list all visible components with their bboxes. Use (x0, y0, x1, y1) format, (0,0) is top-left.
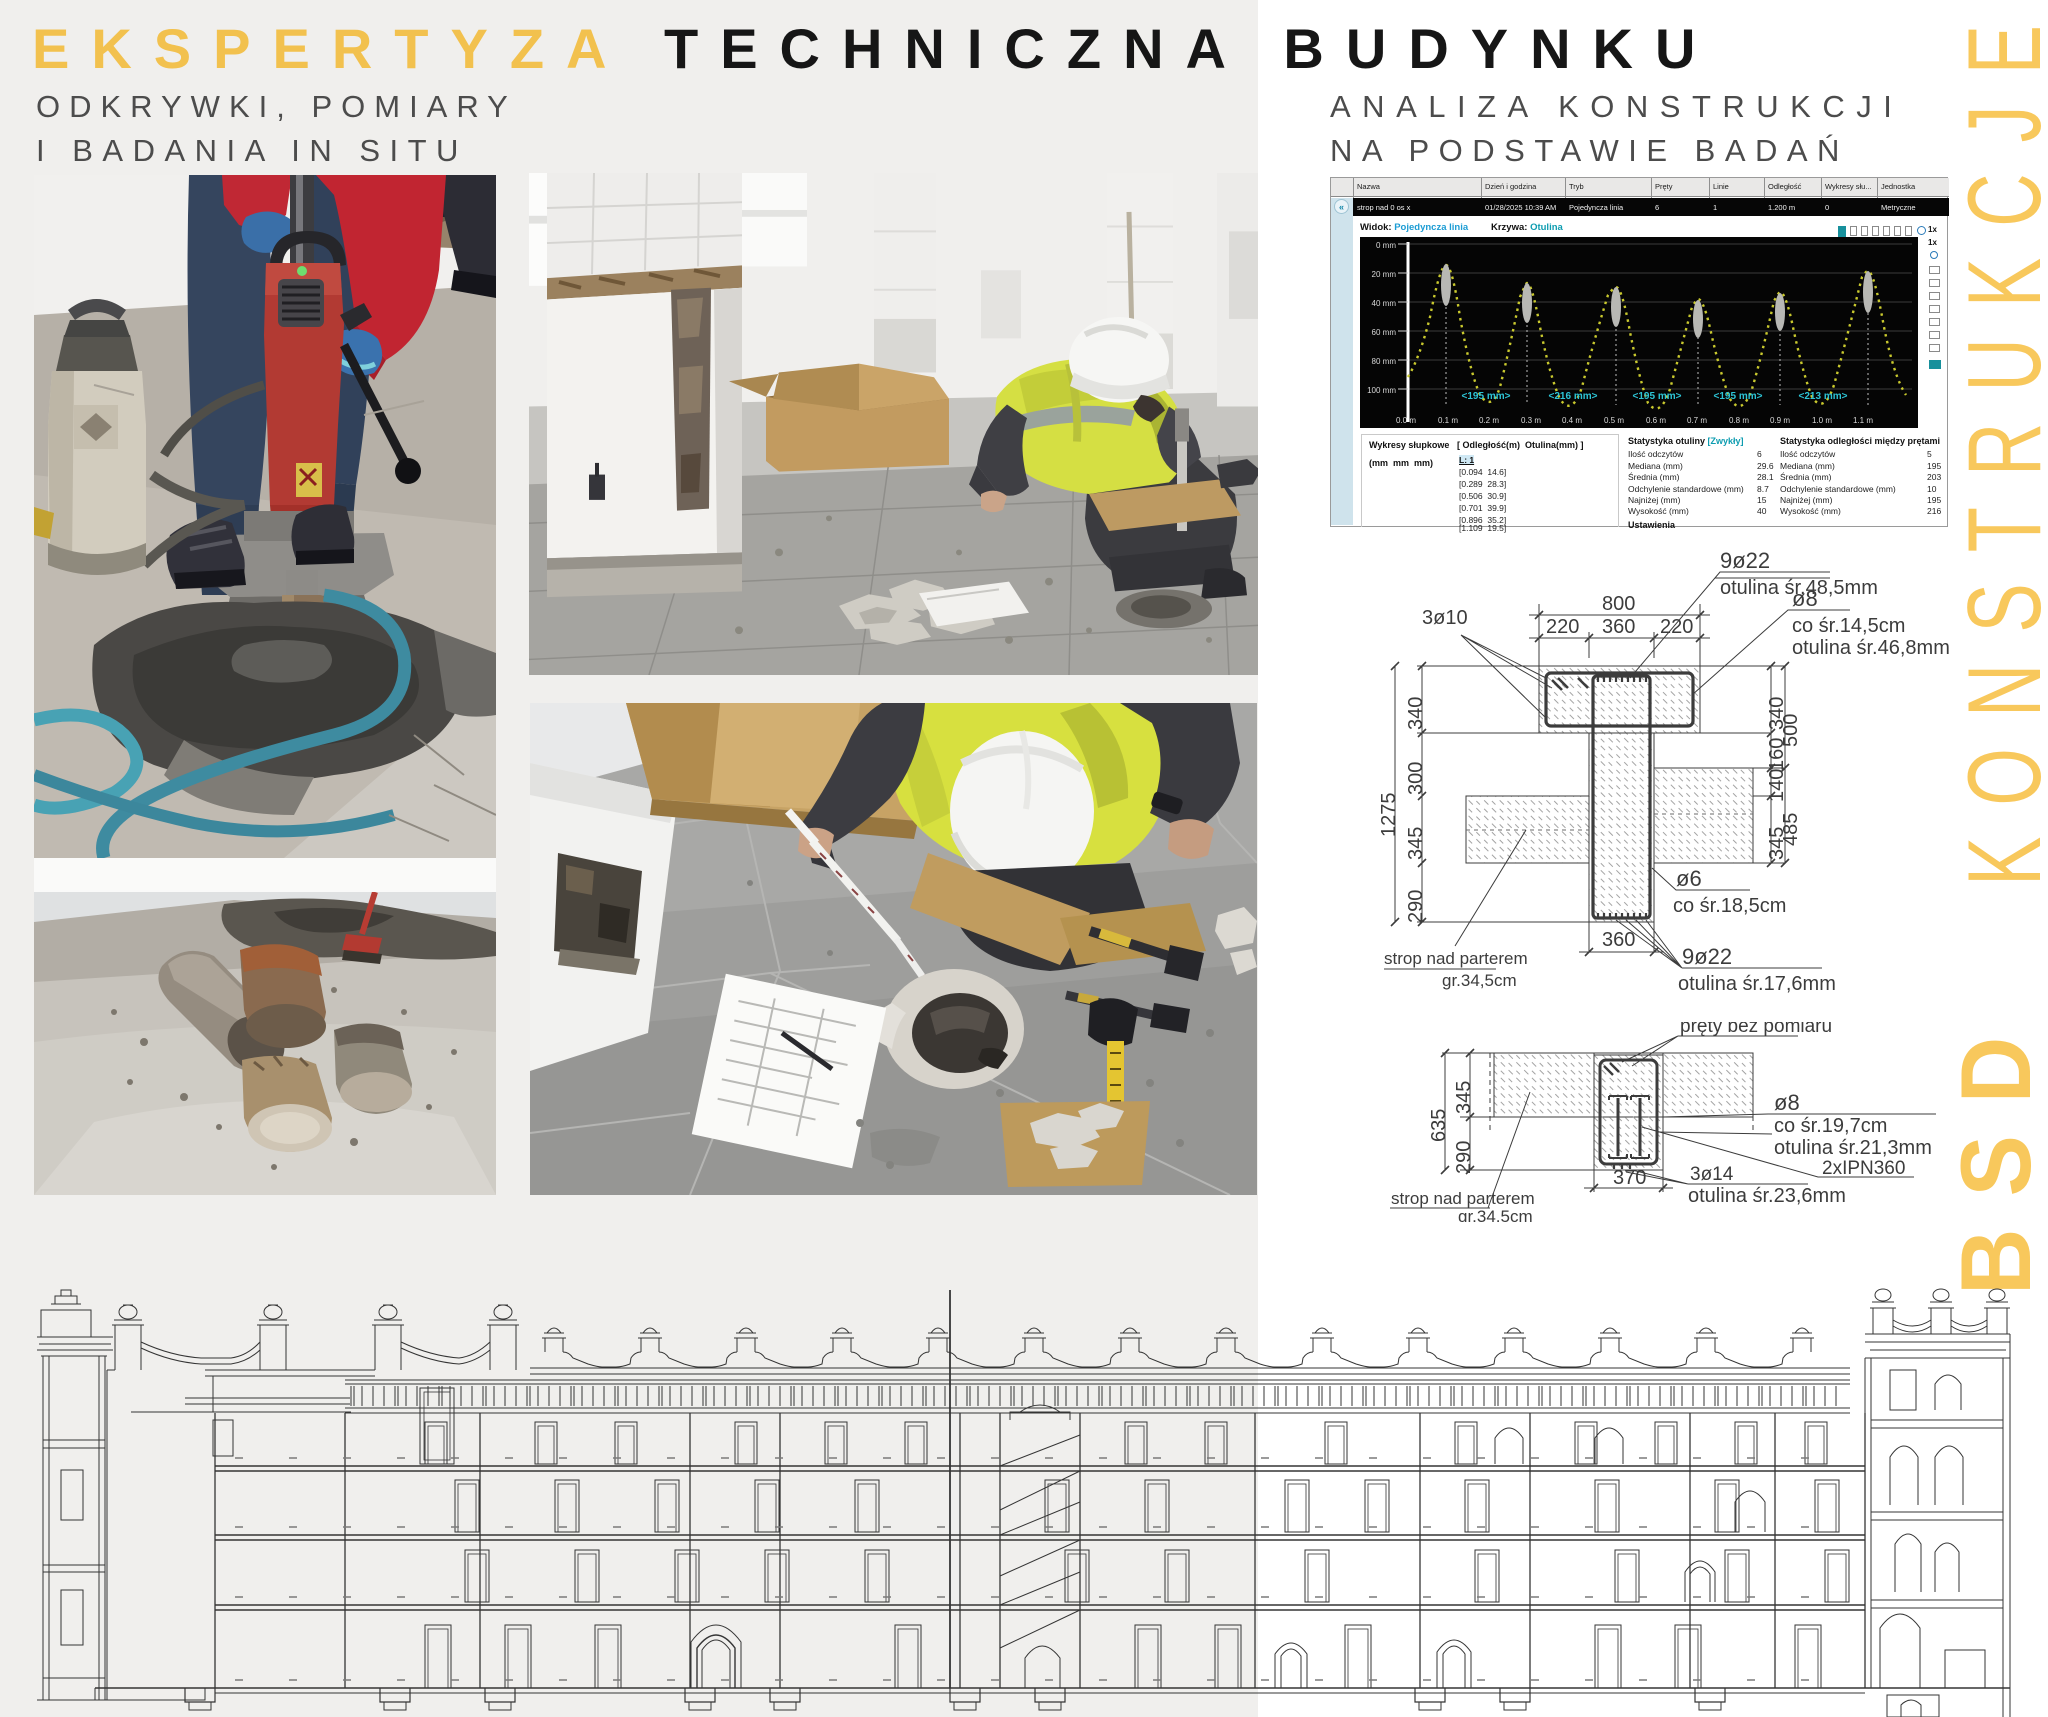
svg-text:290: 290 (1405, 890, 1427, 923)
svg-text:0.4 m: 0.4 m (1562, 416, 1582, 425)
svg-text:9ø22: 9ø22 (1682, 944, 1732, 969)
svg-text:360: 360 (1602, 616, 1635, 638)
svg-text:9ø22: 9ø22 (1720, 550, 1770, 573)
svg-text:<195 mm>: <195 mm> (1462, 391, 1511, 402)
svg-text:800: 800 (1602, 593, 1635, 615)
svg-text:<195 mm>: <195 mm> (1714, 391, 1763, 402)
svg-text:3ø10: 3ø10 (1422, 607, 1468, 629)
svg-text:290: 290 (1453, 1141, 1475, 1174)
svg-text:100 mm: 100 mm (1367, 386, 1396, 395)
svg-text:co śr.14,5cm: co śr.14,5cm (1792, 615, 1905, 637)
svg-text:1275: 1275 (1378, 793, 1400, 838)
svg-text:ø8: ø8 (1774, 1090, 1800, 1115)
svg-text:otulina śr.21,3mm: otulina śr.21,3mm (1774, 1137, 1932, 1159)
svg-text:gr.34,5cm: gr.34,5cm (1442, 971, 1517, 990)
svg-text:co śr.19,7cm: co śr.19,7cm (1774, 1115, 1887, 1137)
svg-text:0.9 m: 0.9 m (1770, 416, 1790, 425)
svg-text:ø6: ø6 (1676, 866, 1702, 891)
svg-text:40 mm: 40 mm (1372, 299, 1397, 308)
svg-text:340: 340 (1405, 697, 1427, 730)
svg-text:otulina śr.17,6mm: otulina śr.17,6mm (1678, 973, 1836, 995)
svg-text:0 mm: 0 mm (1376, 241, 1396, 250)
svg-text:60 mm: 60 mm (1372, 328, 1397, 337)
svg-text:0.8 m: 0.8 m (1729, 416, 1749, 425)
svg-text:pręty bez pomiaru: pręty bez pomiaru (1680, 1022, 1832, 1037)
svg-text:370: 370 (1613, 1167, 1646, 1189)
svg-text:otulina śr.46,8mm: otulina śr.46,8mm (1792, 637, 1950, 659)
svg-text:345: 345 (1453, 1081, 1475, 1114)
svg-text:140: 140 (1766, 769, 1788, 802)
svg-text:0.0 m: 0.0 m (1396, 416, 1416, 425)
svg-text:360: 360 (1602, 929, 1635, 951)
svg-text:500: 500 (1780, 714, 1802, 747)
svg-text:0.1 m: 0.1 m (1438, 416, 1458, 425)
svg-text:otulina śr.23,6mm: otulina śr.23,6mm (1688, 1185, 1846, 1207)
svg-text:220: 220 (1660, 616, 1693, 638)
svg-text:300: 300 (1405, 762, 1427, 795)
svg-text:1.1 m: 1.1 m (1853, 416, 1873, 425)
svg-text:0.2 m: 0.2 m (1479, 416, 1499, 425)
svg-text:strop nad parterem: strop nad parterem (1384, 949, 1528, 968)
svg-text:20 mm: 20 mm (1372, 270, 1397, 279)
svg-text:1.0 m: 1.0 m (1812, 416, 1832, 425)
svg-text:ø8: ø8 (1792, 586, 1818, 611)
svg-text:3ø14: 3ø14 (1690, 1164, 1734, 1185)
svg-text:co śr.18,5cm: co śr.18,5cm (1673, 895, 1786, 917)
svg-text:635: 635 (1428, 1109, 1450, 1142)
svg-text:485: 485 (1780, 813, 1802, 846)
svg-text:strop nad parterem: strop nad parterem (1391, 1189, 1535, 1208)
svg-text:220: 220 (1546, 616, 1579, 638)
svg-text:<195 mm>: <195 mm> (1633, 391, 1682, 402)
svg-text:<216 mm>: <216 mm> (1549, 391, 1598, 402)
svg-text:0.3 m: 0.3 m (1521, 416, 1541, 425)
svg-text:80 mm: 80 mm (1372, 357, 1397, 366)
svg-text:gr.34,5cm: gr.34,5cm (1458, 1207, 1533, 1222)
svg-text:0.7 m: 0.7 m (1687, 416, 1707, 425)
svg-text:0.5 m: 0.5 m (1604, 416, 1624, 425)
svg-text:345: 345 (1405, 827, 1427, 860)
svg-text:0.6 m: 0.6 m (1646, 416, 1666, 425)
svg-text:<213 mm>: <213 mm> (1799, 391, 1848, 402)
svg-text:2xIPN360: 2xIPN360 (1822, 1158, 1905, 1179)
